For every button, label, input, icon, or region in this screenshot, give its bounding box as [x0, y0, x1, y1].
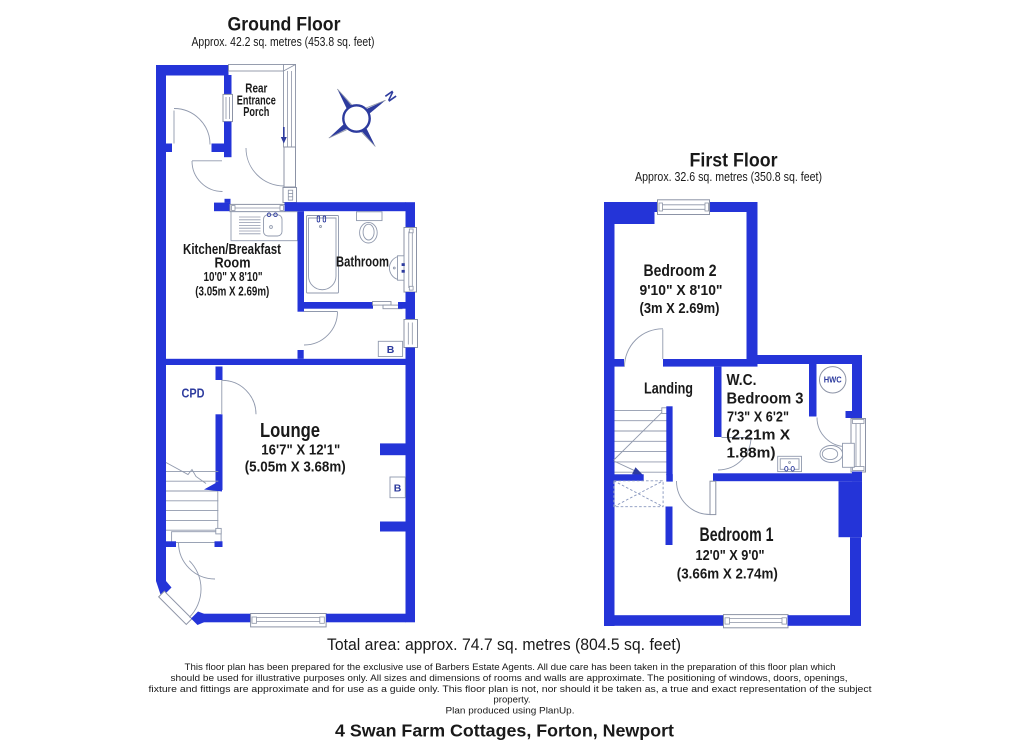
- svg-text:(3.66m X 2.74m): (3.66m X 2.74m): [677, 566, 778, 583]
- svg-text:(5.05m X 3.68m): (5.05m X 3.68m): [245, 460, 346, 476]
- svg-text:B: B: [394, 483, 402, 495]
- svg-text:HWC: HWC: [824, 376, 842, 385]
- svg-text:Total area: approx. 74.7 sq. m: Total area: approx. 74.7 sq. metres (804…: [327, 636, 681, 654]
- svg-text:property.: property.: [493, 695, 530, 706]
- svg-text:fixture and fittings are appro: fixture and fittings are approximate and…: [149, 684, 872, 695]
- svg-text:(2.21m X: (2.21m X: [726, 427, 790, 444]
- svg-text:Bedroom 3: Bedroom 3: [727, 391, 804, 408]
- svg-text:W.C.: W.C.: [727, 372, 757, 389]
- svg-text:This floor plan has been prepa: This floor plan has been prepared for th…: [185, 662, 836, 673]
- svg-text:Lounge: Lounge: [260, 419, 320, 442]
- svg-text:12'0" X 9'0": 12'0" X 9'0": [696, 547, 765, 564]
- svg-text:1.88m): 1.88m): [727, 444, 776, 461]
- svg-text:Bathroom: Bathroom: [336, 253, 389, 270]
- svg-text:Landing: Landing: [644, 381, 693, 398]
- svg-text:(3.05m X 2.69m): (3.05m X 2.69m): [195, 285, 269, 299]
- svg-text:Plan produced using PlanUp.: Plan produced using PlanUp.: [446, 706, 575, 717]
- svg-text:Approx. 32.6 sq. metres (350.8: Approx. 32.6 sq. metres (350.8 sq. feet): [635, 169, 822, 184]
- svg-text:Porch: Porch: [243, 104, 269, 119]
- svg-text:7'3" X 6'2": 7'3" X 6'2": [727, 409, 789, 426]
- svg-text:B: B: [387, 344, 395, 356]
- svg-text:10'0" X 8'10": 10'0" X 8'10": [204, 270, 263, 284]
- svg-text:Bedroom 1: Bedroom 1: [700, 525, 774, 546]
- svg-text:9'10" X 8'10": 9'10" X 8'10": [640, 282, 723, 299]
- svg-text:Ground Floor: Ground Floor: [228, 15, 342, 36]
- svg-text:Room: Room: [215, 255, 251, 271]
- svg-text:(3m X 2.69m): (3m X 2.69m): [640, 300, 720, 317]
- svg-text:Bedroom 2: Bedroom 2: [644, 261, 717, 280]
- svg-text:16'7" X 12'1": 16'7" X 12'1": [261, 442, 340, 458]
- svg-text:CPD: CPD: [182, 387, 205, 401]
- svg-text:4 Swan Farm Cottages, Forton,: 4 Swan Farm Cottages, Forton, Newport: [335, 721, 674, 741]
- svg-text:should be used for illustrativ: should be used for illustrative purposes…: [171, 673, 848, 684]
- svg-text:Approx. 42.2 sq. metres (453.8: Approx. 42.2 sq. metres (453.8 sq. feet): [192, 34, 375, 49]
